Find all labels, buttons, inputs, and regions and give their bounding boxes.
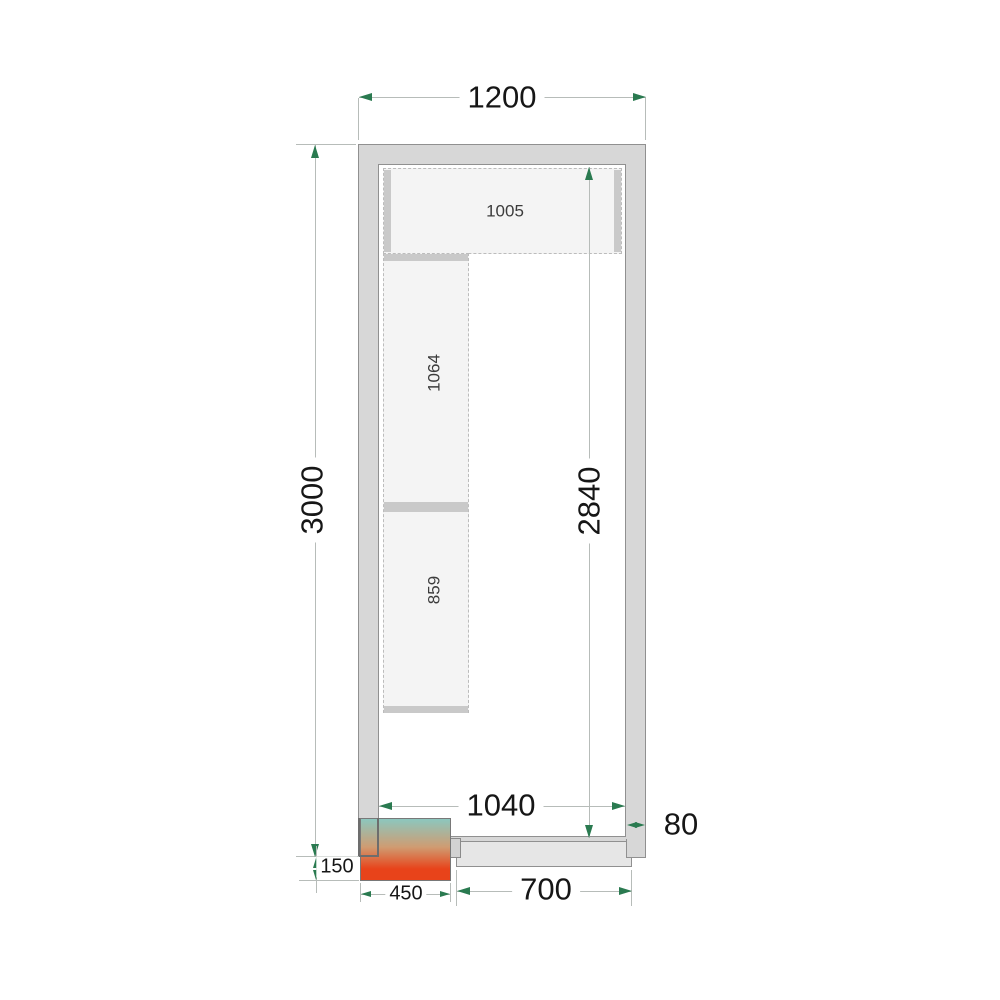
dim-arrow-right [635,822,645,828]
shelf-left-middle-support [384,502,468,512]
dim-arrow-up [585,167,593,180]
wall-outline-over-unit [358,818,379,857]
dim-arrow-left [379,802,392,810]
dim-arrow-right [633,93,646,101]
dim-unit-width-label: 450 [385,884,426,905]
dim-inner-height-label: 2840 [574,459,607,544]
dim-outer-width-label: 1200 [460,82,545,115]
extension-line [645,98,646,140]
shelf-left-bottom-support [384,706,468,713]
cold-room-plan-drawing: 1005 1064 859 1200 3000 2840 1040 [0,0,1000,1000]
dim-outer-height-label: 3000 [297,458,330,543]
dim-door-width-label: 700 [512,874,580,907]
dim-arrow-down [585,825,593,838]
dim-wall-thickness-label: 80 [656,809,706,842]
dim-arrow-left [361,891,371,897]
dim-arrow-right [612,802,625,810]
dim-unit-overhang-label: 150 [316,857,357,878]
extension-line [299,880,359,881]
shelf-top-right-support [614,170,621,252]
extension-line [450,883,451,902]
right-wall-bottom-segment [626,839,646,858]
door-panel [456,841,632,867]
dim-arrow-left [457,887,470,895]
extension-line [296,144,356,145]
dim-arrow-left [359,93,372,101]
door-jamb-block [450,838,461,858]
extension-line [358,98,359,140]
shelf-left-column [383,253,469,713]
dim-inner-width-label: 1040 [459,790,544,823]
shelf-left-top-support [384,254,468,261]
dim-arrow-up [311,145,319,158]
shelf-left-upper-label: 1064 [426,354,443,392]
shelf-top-left-support [384,170,391,252]
dim-arrow-right [440,891,450,897]
dim-arrow-down [311,844,319,857]
shelf-top-label: 1005 [486,203,524,220]
dim-arrow-right [619,887,632,895]
shelf-left-lower-label: 859 [426,576,443,604]
